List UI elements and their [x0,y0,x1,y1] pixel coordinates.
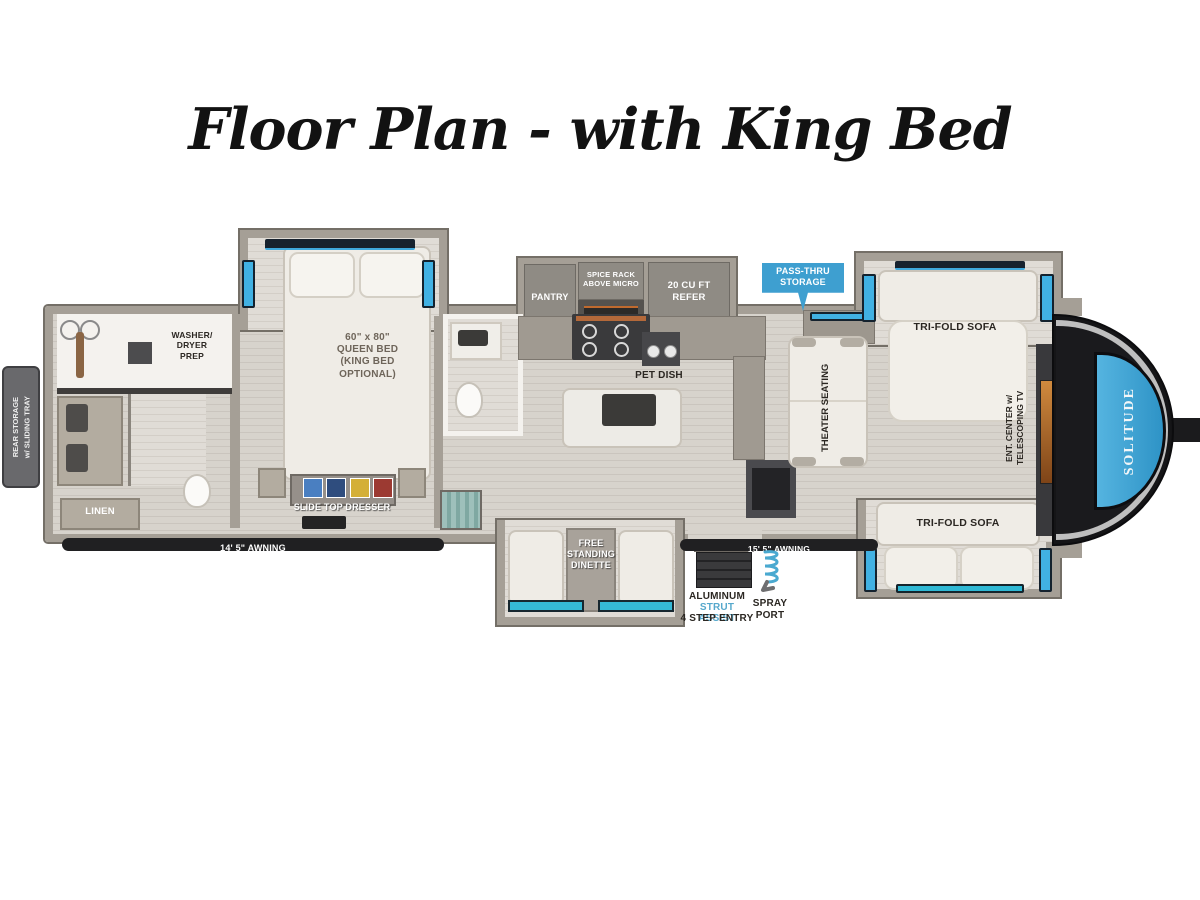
dresser-label: SLIDE TOP DRESSER [282,502,402,513]
entry-steps-label: 4 STEP ENTRY [680,613,754,624]
theater-armrest [840,338,864,347]
cooktop-knobs [576,316,646,321]
sofa-bottom-window-right [1039,548,1052,592]
pet-dish-bowl [664,345,677,358]
queen-bed-label: 60" x 80" QUEEN BED (KING BED OPTIONAL) [300,332,435,381]
bed-pillow [359,252,425,298]
linen-label: LINEN [60,506,140,518]
pet-dish-bowl [647,345,660,358]
washer-dryer-label: WASHER/ DRYER PREP [156,330,228,361]
pantry-label: PANTRY [524,292,576,303]
awning-left-label: 14' 5" AWNING [220,543,286,553]
toilet [455,382,483,418]
bedroom-steps [128,394,206,486]
floor-plan-page: Floor Plan - with King Bed REAR STORAGE … [0,0,1200,900]
sofa-top-label: TRI-FOLD SOFA [885,321,1025,334]
bath-sink [66,444,88,472]
bedroom-window-right [422,260,435,308]
spice-rack-label: SPICE RACK ABOVE MICRO [578,270,644,288]
burner-icon [614,324,629,339]
pet-dish-label: PET DISH [629,370,689,382]
sofa-top-window-left [862,274,876,322]
burner-icon [614,342,629,357]
theater-armrest [840,457,864,466]
rear-storage-compartment: REAR STORAGE w/ SLIDING TRAY [2,366,40,488]
dinette-window-right [598,600,674,612]
dresser-drawer [350,478,370,498]
dresser-drawer [303,478,323,498]
island-sink [602,394,656,426]
sofa-bottom-label: TRI-FOLD SOFA [880,517,1036,530]
bedroom-window-left [242,260,255,308]
entry-material-label: ALUMINUM [680,591,754,602]
pass-thru-storage-label: PASS-THRU STORAGE [762,266,844,288]
toilet [183,474,211,508]
nightstand [398,468,426,498]
awning-left-bar: 14' 5" AWNING [62,538,444,551]
entry-steps [696,552,752,588]
brand-label: SOLITUDE [1122,387,1138,475]
sofa-bottom-window-strip [896,584,1024,593]
dresser-drawer [326,478,346,498]
dinette-label: FREE STANDING DINETTE [551,538,631,571]
refrigerator-label: 20 CU FT REFER [648,280,730,303]
sofa-top-skylight [895,261,1025,270]
spray-port-label: SPRAY PORT [746,598,794,622]
buffet-window [810,312,868,321]
theater-armrest [792,457,816,466]
bedroom-skylight [265,239,415,250]
bath-sink [66,404,88,432]
theater-seating-label: THEATER SEATING [820,358,836,458]
rear-storage-label: REAR STORAGE w/ SLIDING TRAY [10,396,33,458]
pass-thru-storage-banner: PASS-THRU STORAGE [762,263,844,311]
counter-return [733,356,765,460]
sofa-bottom-window-left [864,548,877,592]
mid-bath-sink [458,330,488,346]
dresser-drawer [373,478,393,498]
theater-armrest [792,338,816,347]
dinette-window-left [508,600,584,612]
closet-rod [76,332,84,378]
bedroom-tv-cabinet [128,342,152,364]
floor-plan: REAR STORAGE w/ SLIDING TRAY WASHER/ DRY… [0,0,1200,900]
burner-icon [582,342,597,357]
burner-icon [582,324,597,339]
bedroom-tv [302,516,346,529]
ent-center-label: ENT. CENTER w/ TELESCOPING TV [1004,378,1032,478]
spray-port-hose-icon [757,546,787,594]
bed-pillow [289,252,355,298]
nightstand [258,468,286,498]
partition-tv-screen [752,468,790,510]
tri-fold-sofa-top-back [878,270,1038,322]
mirrored-wardrobe [440,490,482,530]
